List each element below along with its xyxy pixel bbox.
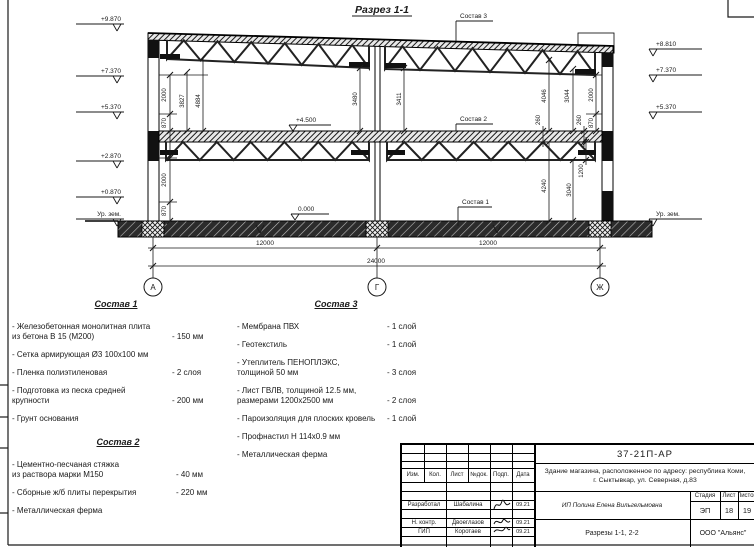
level-text: +7.370 <box>656 67 676 74</box>
legend-item-name: - Металлическая ферма <box>12 506 176 516</box>
level-text: +4.500 <box>296 117 316 124</box>
svg-text:870: 870 <box>162 117 168 128</box>
tb-name: Шабалина <box>446 500 490 509</box>
legend-item: - Мембрана ПВХ - 1 слой <box>237 322 435 332</box>
legend-item-name: - Цементно-песчаная стяжка из раствора м… <box>12 460 176 480</box>
legend-title: Состав 2 <box>12 437 224 448</box>
legend-item-value: - 2 слоя <box>172 368 220 378</box>
legend-item-value: - 150 мм <box>172 332 220 342</box>
legend-title: Состав 3 <box>237 299 435 310</box>
svg-text:870: 870 <box>589 117 595 128</box>
legend-title: Состав 1 <box>12 299 220 310</box>
legend-item: - Сборные ж/б плиты перекрытия - 220 мм <box>12 488 224 498</box>
composition-ref: Состав 2 <box>460 116 487 123</box>
floor-band <box>159 131 602 142</box>
level-text: +8.810 <box>656 41 676 48</box>
tb-name: Коротаев <box>446 527 490 536</box>
tb-sheets-value: 19 <box>738 501 754 519</box>
composition-ref: Состав 3 <box>460 13 487 20</box>
legend-item-name: - Грунт основания <box>12 414 172 424</box>
tb-role: Н. контр. <box>402 518 446 527</box>
signature <box>492 497 512 513</box>
legend-item-value: - 1 слой <box>387 322 435 332</box>
footing <box>366 221 388 237</box>
svg-text:2000: 2000 <box>589 88 595 102</box>
legend-item-name: - Железобетонная монолитная плита из бет… <box>12 322 172 342</box>
svg-text:12000: 12000 <box>256 240 274 247</box>
title-block: Изм. Кол. Лист №док. Подп. Дата Разработ… <box>400 443 754 547</box>
level-text: +5.370 <box>656 104 676 111</box>
axis-label-a: А <box>150 283 156 292</box>
legend-item: - Грунт основания <box>12 414 220 424</box>
svg-text:3480: 3480 <box>353 92 359 106</box>
tb-sheet-label: Лист <box>720 491 738 501</box>
axis-label-j: Ж <box>596 283 604 292</box>
axis-bubbles: А Г Ж <box>144 278 609 296</box>
axis-label-g: Г <box>375 283 380 292</box>
svg-text:260: 260 <box>577 114 583 125</box>
level-text: +0.870 <box>101 189 121 196</box>
legend-item: - Подготовка из песка средней крупности … <box>12 386 220 406</box>
tb-client: ИП Полина Елена Вильгельмовна <box>534 491 690 519</box>
level-text: +7.370 <box>101 68 121 75</box>
roof-parapet <box>578 33 614 46</box>
composition-list-1: Состав 1 - Железобетонная монолитная пли… <box>12 299 220 432</box>
legend-item-name: - Профнастил Н 114х0.9 мм <box>237 432 387 442</box>
tb-name: Двоеглазов <box>446 518 490 527</box>
level-text: Ур. зем. <box>97 211 121 218</box>
legend-item-name: - Геотекстиль <box>237 340 387 350</box>
legend-item: - Геотекстиль - 1 слой <box>237 340 435 350</box>
svg-text:260: 260 <box>536 114 542 125</box>
wall-right <box>602 46 613 221</box>
legend-item-value: - 3 слоя <box>387 368 435 378</box>
svg-text:3040: 3040 <box>567 183 573 197</box>
tb-col-izm: Изм. <box>402 468 424 482</box>
tb-company: ООО "Альянс" <box>690 519 754 547</box>
legend-item: - Сетка армирующая Ø3 100х100 мм <box>12 350 220 360</box>
tb-role: Разработал <box>402 500 446 509</box>
svg-text:870: 870 <box>162 205 168 216</box>
legend-item-value: - 1 слой <box>387 340 435 350</box>
legend-item-name: - Пленка полиэтиленовая <box>12 368 172 378</box>
svg-text:1200: 1200 <box>579 164 585 178</box>
svg-text:12000: 12000 <box>479 240 497 247</box>
svg-text:24000: 24000 <box>367 258 385 265</box>
grid-line <box>402 482 534 483</box>
legend-item: - Железобетонная монолитная плита из бет… <box>12 322 220 342</box>
svg-text:3411: 3411 <box>397 92 403 106</box>
legend-item-name: - Лист ГВЛВ, толщиной 12.5 мм, размерами… <box>237 386 387 406</box>
svg-text:2000: 2000 <box>162 173 168 187</box>
tb-project-name: Здание магазина, расположенное по адресу… <box>536 463 754 491</box>
legend-item: - Лист ГВЛВ, толщиной 12.5 мм, размерами… <box>237 386 435 406</box>
view-title-text: Разрез 1-1 <box>355 4 409 16</box>
legend-item-name: - Сетка армирующая Ø3 100х100 мм <box>12 350 172 360</box>
tb-stage-value: ЭП <box>690 501 720 519</box>
tb-date: 09.21 <box>512 500 534 509</box>
grid-line <box>490 445 491 547</box>
footing <box>589 221 611 237</box>
legend-item: - Пароизоляция для плоских кровель - 1 с… <box>237 414 435 424</box>
tb-col-data: Дата <box>512 468 534 482</box>
grid-line <box>402 536 534 537</box>
grid-line <box>402 509 534 510</box>
legend-item-value: - 200 мм <box>172 396 220 406</box>
svg-text:3827: 3827 <box>180 94 186 108</box>
legend-item-name: - Подготовка из песка средней крупности <box>12 386 172 406</box>
wall-left <box>148 33 159 221</box>
composition-ref: Состав 1 <box>462 199 489 206</box>
view-title: Разрез 1-1 <box>352 4 412 16</box>
legend-item: - Пленка полиэтиленовая - 2 слоя <box>12 368 220 378</box>
svg-text:4046: 4046 <box>542 89 548 103</box>
footing <box>142 221 164 237</box>
tb-sheets-label: Листов <box>738 491 754 501</box>
level-text: Ур. зем. <box>656 211 680 218</box>
tb-col-podp: Подп. <box>490 468 512 482</box>
tb-doc-number: 37-21П-АР <box>534 445 754 463</box>
tb-stage-label: Стадия <box>690 491 720 501</box>
level-text: +5.370 <box>101 104 121 111</box>
legend-item: - Металлическая ферма <box>12 506 224 516</box>
dimension-lines <box>148 55 606 278</box>
tb-col-kol: Кол. <box>424 468 446 482</box>
legend-item-name: - Сборные ж/б плиты перекрытия <box>12 488 176 498</box>
level-text: +2.870 <box>101 153 121 160</box>
legend-item-value: - 2 слоя <box>387 396 435 406</box>
legend-item-name: - Мембрана ПВХ <box>237 322 387 332</box>
svg-text:4884: 4884 <box>196 94 202 108</box>
level-text: 0.000 <box>298 206 315 213</box>
tb-date: 09.21 <box>512 527 534 536</box>
legend-item-name: - Металлическая ферма <box>237 450 387 460</box>
level-text: +9.870 <box>101 16 121 23</box>
svg-text:2000: 2000 <box>162 88 168 102</box>
tb-col-doc: №док. <box>468 468 490 482</box>
legend-item-name: - Утеплитель ПЕНОПЛЭКС, толщиной 50 мм <box>237 358 387 378</box>
signature <box>492 517 512 535</box>
tb-role: ГИП <box>402 527 446 536</box>
legend-item: - Профнастил Н 114х0.9 мм <box>237 432 435 442</box>
svg-text:4240: 4240 <box>542 179 548 193</box>
svg-text:3044: 3044 <box>565 89 571 103</box>
legend-item: - Цементно-песчаная стяжка из раствора м… <box>12 460 224 480</box>
legend-item-value: - 220 мм <box>176 488 224 498</box>
legend-item-value: - 1 слой <box>387 414 435 424</box>
composition-list-2: Состав 2 - Цементно-песчаная стяжка из р… <box>12 437 224 524</box>
tb-sheet-title: Разрезы 1-1, 2-2 <box>534 519 690 547</box>
legend-item: - Утеплитель ПЕНОПЛЭКС, толщиной 50 мм -… <box>237 358 435 378</box>
tb-sheet-value: 18 <box>720 501 738 519</box>
legend-item-name: - Пароизоляция для плоских кровель <box>237 414 387 424</box>
tb-date: 09.21 <box>512 518 534 527</box>
legend-item-value: - 40 мм <box>176 470 224 480</box>
tb-col-list: Лист <box>446 468 468 482</box>
drawing-sheet: { "drawing": { "title": "Разрез 1-1", "l… <box>0 0 754 549</box>
grid-line <box>402 491 534 492</box>
